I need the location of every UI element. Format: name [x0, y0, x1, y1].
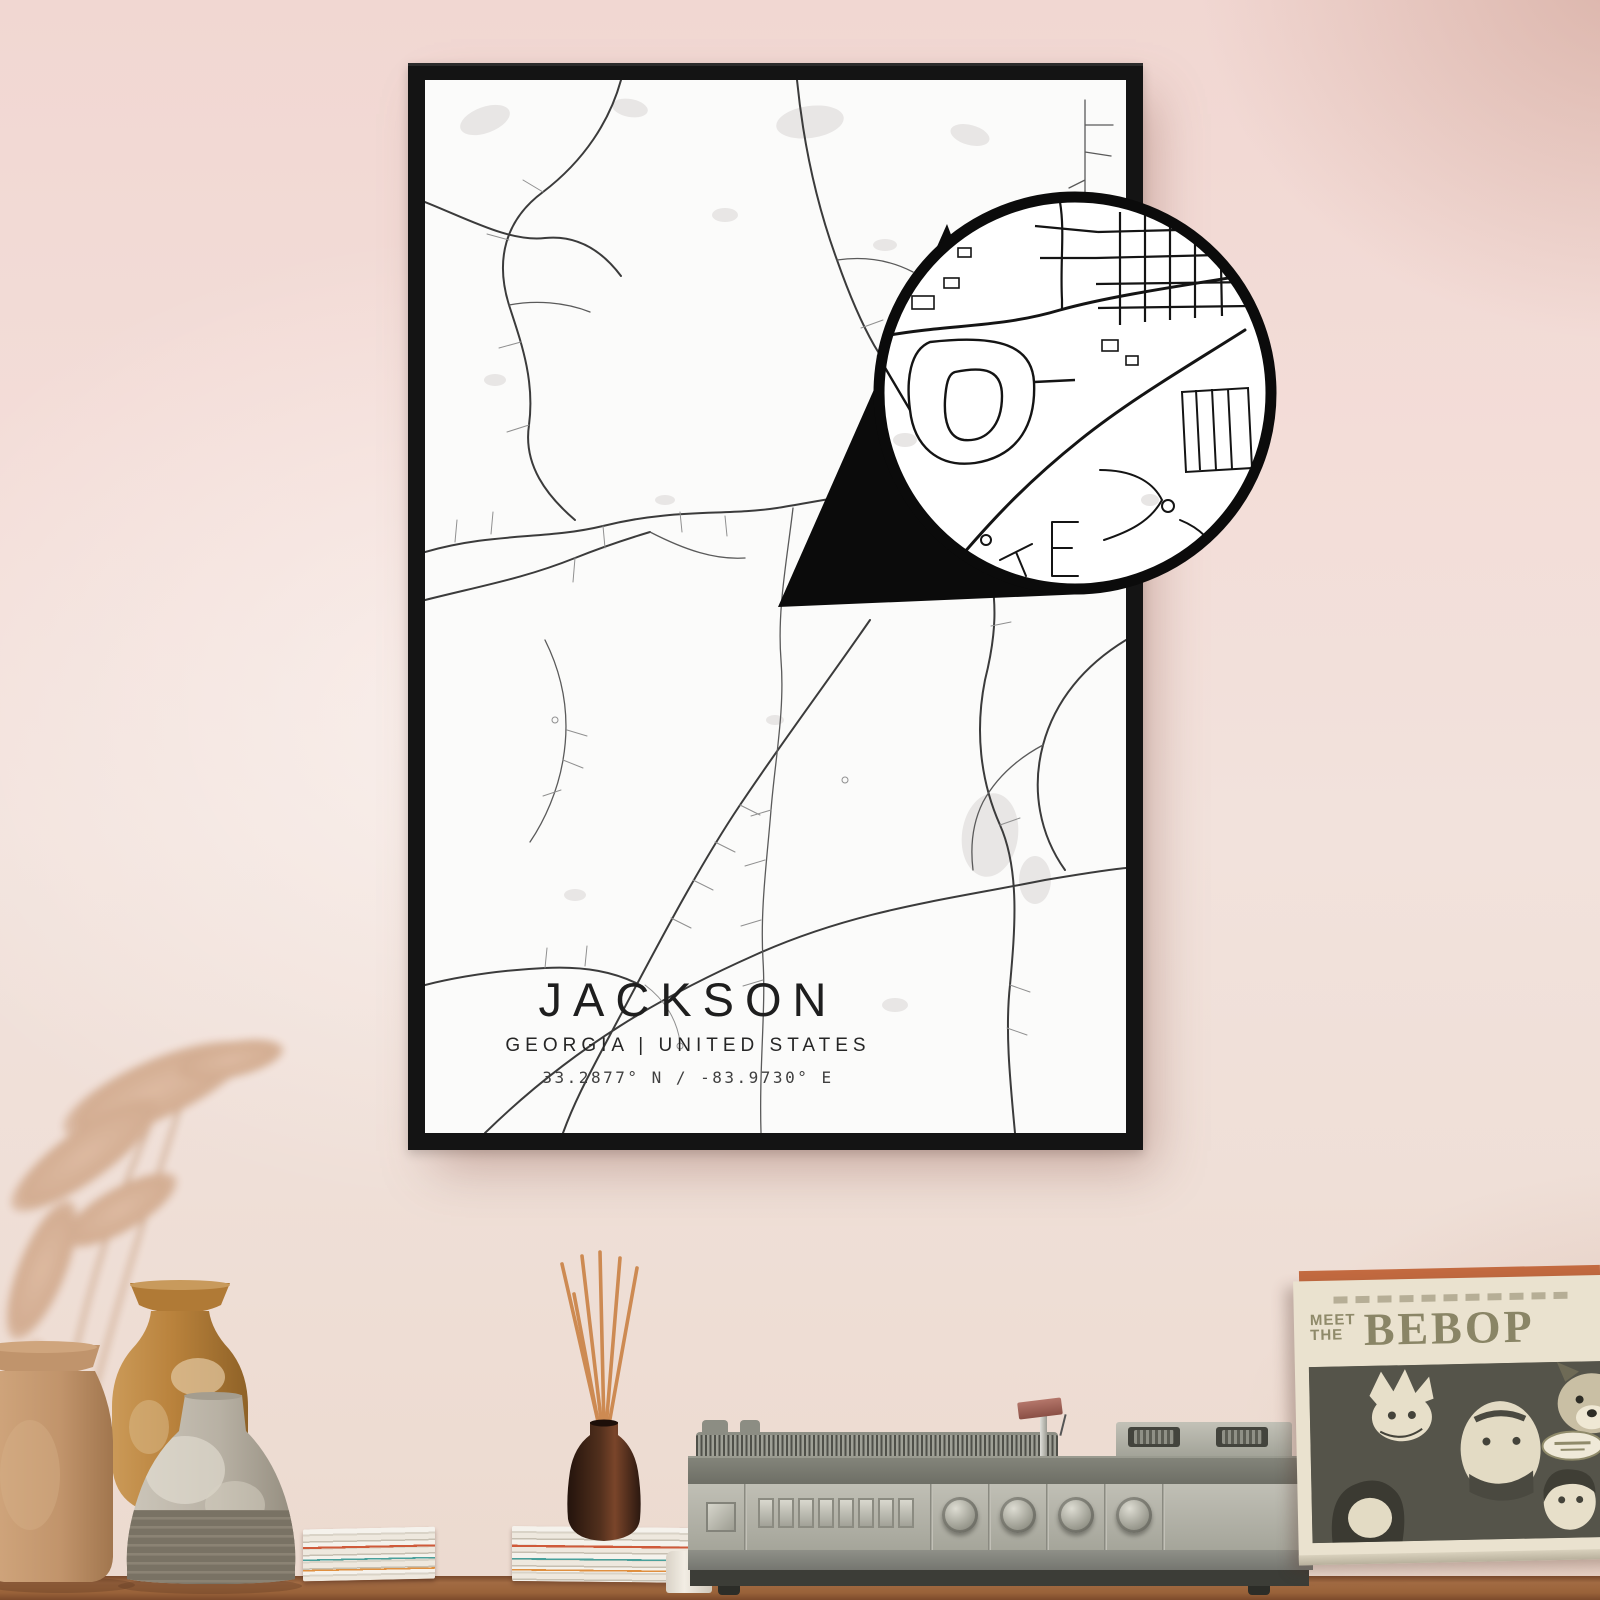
- turntable-preset-buttons: [758, 1498, 914, 1528]
- turntable-power-button: [706, 1502, 736, 1532]
- turntable-knob: [1116, 1497, 1152, 1533]
- map-minor-roads: [455, 180, 1055, 1049]
- turntable-knob: [1058, 1497, 1094, 1533]
- diffuser-bottle: [567, 1422, 640, 1541]
- turntable-foot: [1248, 1586, 1270, 1595]
- poster-subtitle: GEORGIA | UNITED STATES: [425, 1035, 988, 1057]
- vase-group: [0, 1255, 330, 1600]
- turntable-foot: [718, 1586, 740, 1595]
- poster-frame: JACKSON GEORGIA | UNITED STATES 33.2877°…: [408, 63, 1143, 1150]
- turntable: [688, 1398, 1313, 1596]
- turntable-knob: [1000, 1497, 1036, 1533]
- map-poster: JACKSON GEORGIA | UNITED STATES 33.2877°…: [425, 80, 1126, 1133]
- turntable-tonearm: [1006, 1398, 1086, 1460]
- turntable-top-edge: [688, 1456, 1313, 1486]
- sleeve-title: BEBOP: [1363, 1308, 1535, 1348]
- reed-diffuser: [540, 1250, 690, 1550]
- room-scene: MEET THE BEBOP: [0, 0, 1600, 1600]
- diffuser-reeds: [562, 1252, 637, 1432]
- turntable-base: [690, 1570, 1309, 1586]
- vase-tan: [0, 1341, 113, 1582]
- sleeve-bottom-edge: [1299, 1549, 1600, 1566]
- turntable-knob: [942, 1497, 978, 1533]
- sleeve-meet-the: MEET THE: [1310, 1312, 1356, 1343]
- map-terrain-patches: [456, 96, 1081, 1012]
- poster-title: JACKSON: [425, 976, 988, 1023]
- turntable-knob-cap: [740, 1420, 760, 1435]
- record-sleeve: MEET THE BEBOP: [1293, 1275, 1600, 1566]
- sleeve-the-label: THE: [1310, 1327, 1356, 1343]
- turntable-knob-cap: [702, 1420, 728, 1435]
- poster-coordinates: 33.2877° N / -83.9730° E: [425, 1068, 988, 1087]
- turntable-control-deck: [1116, 1422, 1292, 1460]
- turntable-lower-band: [688, 1550, 1313, 1570]
- sleeve-artwork: [1309, 1361, 1600, 1544]
- frame-highlight: [408, 63, 1143, 66]
- poster-title-block: JACKSON GEORGIA | UNITED STATES 33.2877°…: [425, 976, 988, 1087]
